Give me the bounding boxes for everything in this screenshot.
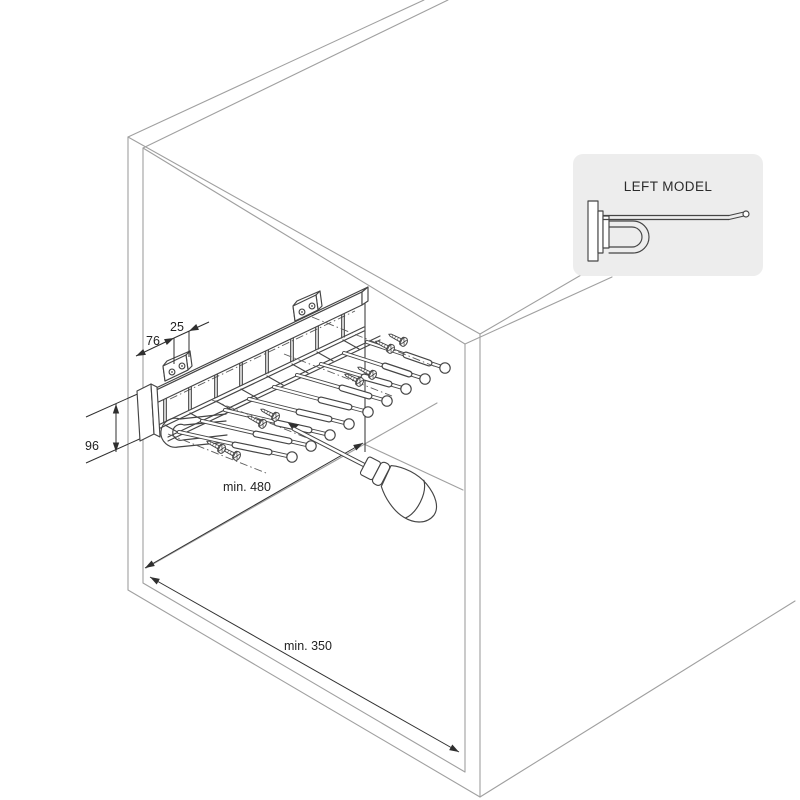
inset-title: LEFT MODEL bbox=[624, 179, 713, 194]
bracket-offset-label: 76 bbox=[146, 334, 160, 348]
front-mounting-plate bbox=[137, 384, 160, 441]
screwdriver bbox=[288, 423, 447, 529]
left-model-inset: LEFT MODEL bbox=[573, 154, 763, 276]
dimension-min-width: min. 350 bbox=[148, 574, 460, 755]
trouser-rack bbox=[137, 287, 450, 462]
min-depth-label: min. 480 bbox=[223, 480, 271, 494]
plate-height-label: 96 bbox=[85, 439, 99, 453]
min-width-label: min. 350 bbox=[284, 639, 332, 653]
installation-diagram: min. 480 min. 350 96 bbox=[0, 0, 800, 800]
dimension-bracket-position: 76 25 bbox=[135, 320, 209, 364]
mounting-rail bbox=[150, 287, 368, 406]
hole-pitch-label: 25 bbox=[170, 320, 184, 334]
technical-drawing-page: min. 480 min. 350 96 bbox=[0, 0, 800, 800]
cabinet-wireframe bbox=[128, 0, 795, 797]
